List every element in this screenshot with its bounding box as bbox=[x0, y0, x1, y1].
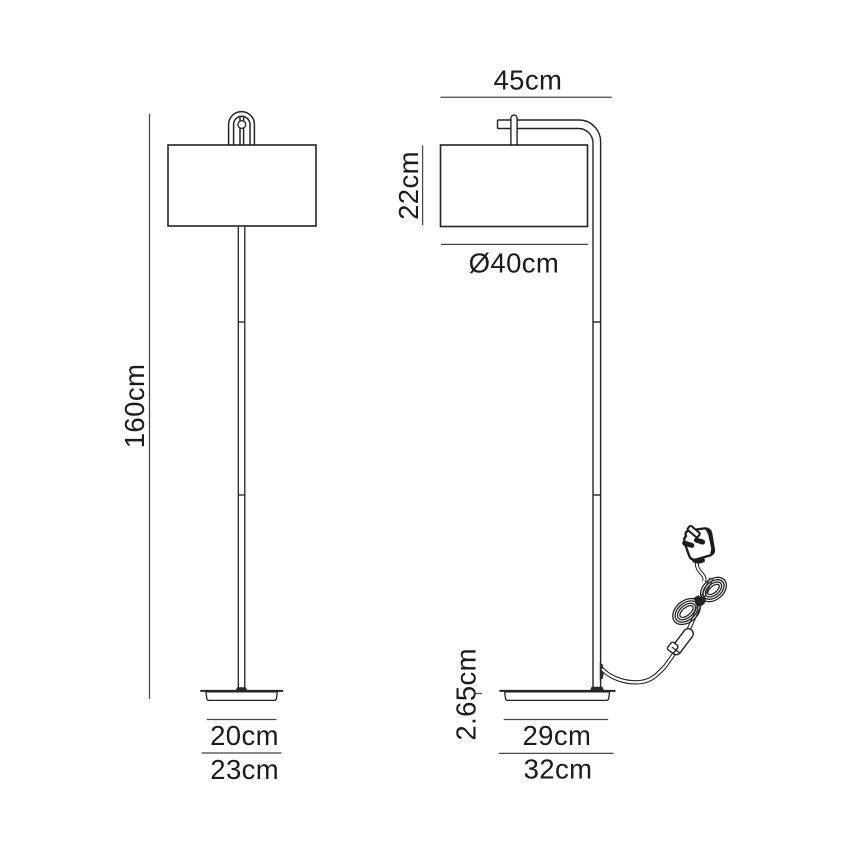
svg-text:2.65cm: 2.65cm bbox=[451, 648, 482, 741]
svg-text:29cm: 29cm bbox=[522, 720, 591, 751]
svg-text:22cm: 22cm bbox=[393, 151, 424, 220]
svg-text:23cm: 23cm bbox=[210, 754, 279, 785]
svg-text:Ø40cm: Ø40cm bbox=[469, 248, 560, 279]
svg-text:160cm: 160cm bbox=[119, 364, 150, 449]
svg-text:45cm: 45cm bbox=[493, 65, 562, 96]
svg-text:20cm: 20cm bbox=[210, 720, 279, 751]
svg-text:32cm: 32cm bbox=[524, 754, 593, 785]
